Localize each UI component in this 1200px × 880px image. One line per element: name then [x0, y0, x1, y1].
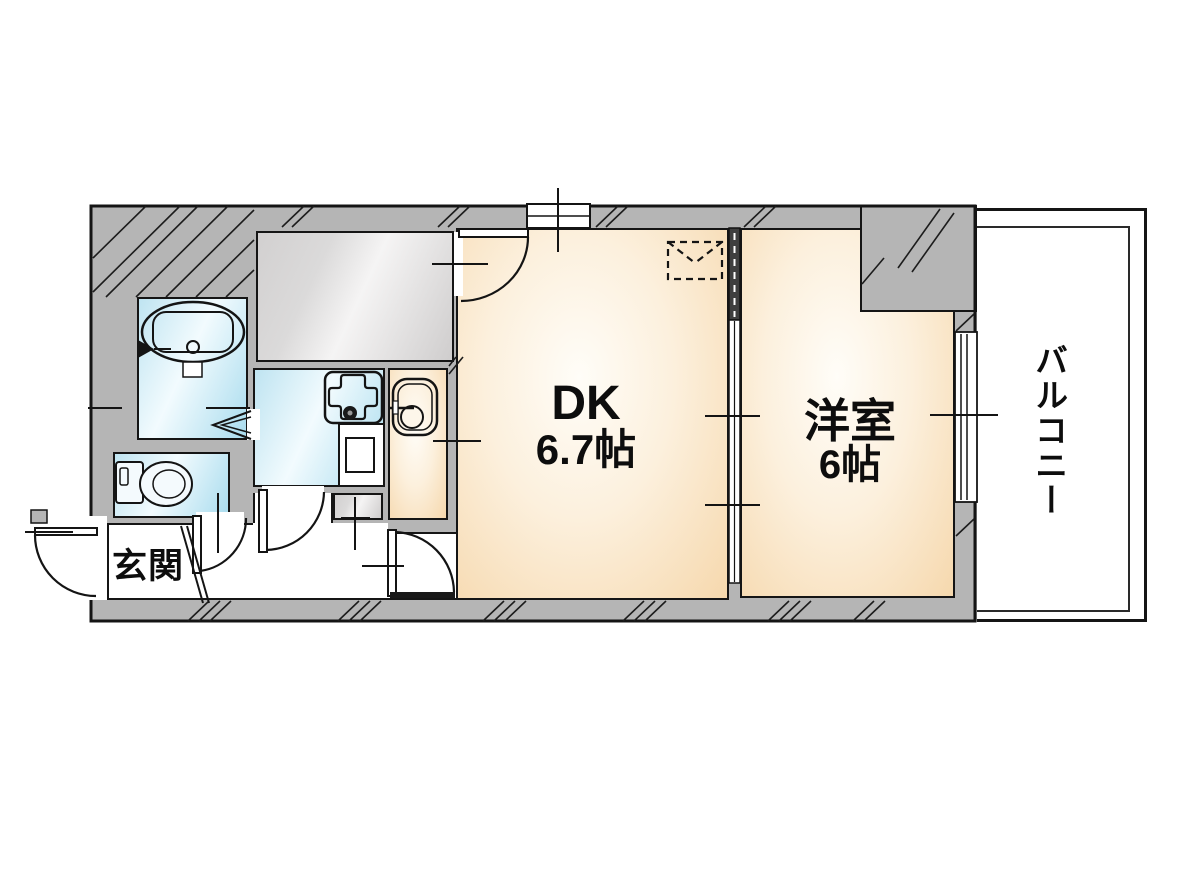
dk-name-text: DK	[486, 380, 686, 429]
dk-western-sliding-door	[729, 228, 740, 583]
dk-size-text: 6.7帖	[486, 429, 686, 472]
balcony-sliding-window	[955, 332, 977, 502]
washing-machine-pan	[388, 379, 437, 435]
entrance-label: 玄関	[106, 549, 190, 585]
centerline-ticks	[25, 188, 998, 566]
kitchen-swing-door	[259, 490, 324, 552]
bathtub	[142, 302, 244, 377]
entrance-swing-door	[31, 510, 97, 596]
balcony-label: バルコニー	[1032, 320, 1066, 540]
gas-burner-icon	[325, 372, 382, 423]
western-size-text: 6帖	[750, 445, 950, 486]
western-room-label: 洋室 6帖	[750, 398, 950, 486]
bathroom-folding-door	[213, 411, 251, 439]
toilet-bowl	[116, 462, 192, 506]
dk-swing-door	[388, 530, 455, 598]
dk-room-label: DK 6.7帖	[486, 380, 686, 472]
kitchen-counter-sink	[346, 438, 374, 472]
western-name-text: 洋室	[750, 398, 950, 445]
floor-plan: DK 6.7帖 洋室 6帖 玄関 バルコニー	[0, 0, 1200, 880]
hanging-cabinet-icon	[668, 242, 722, 279]
